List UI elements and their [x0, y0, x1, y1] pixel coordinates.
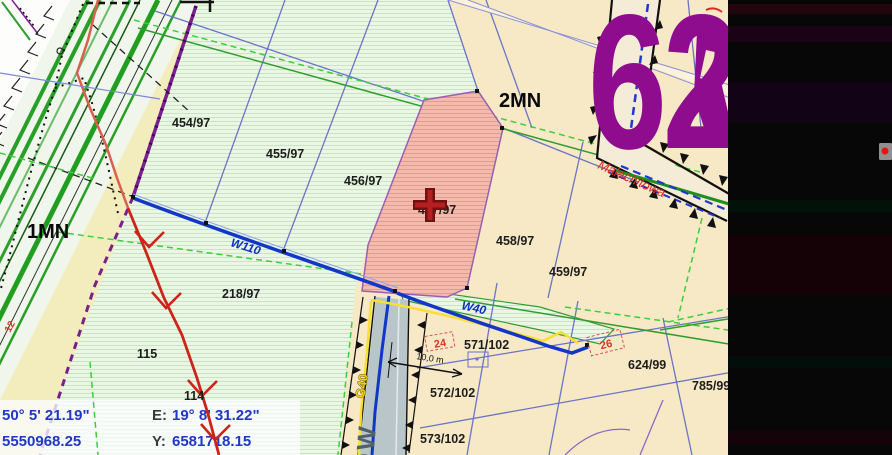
- parcel-label: 573/102: [420, 432, 465, 446]
- road-class-label-dw: DW: [350, 423, 382, 455]
- side-panel-unrendered: [728, 0, 892, 455]
- map-canvas[interactable]: 10,0 m 50° 5' 21.19" E: 19° 8' 31.22" 55…: [0, 0, 892, 455]
- parcel-label: 456/97: [344, 174, 382, 188]
- x-coordinate-value: 5550968.25: [2, 433, 81, 450]
- parcel-label: 571/102: [464, 338, 509, 352]
- latitude-value: 50° 5' 21.19": [2, 407, 90, 424]
- parcel-label: 115: [137, 347, 157, 361]
- red-dot-icon: [882, 148, 889, 155]
- longitude-value: 19° 8' 31.22": [172, 407, 260, 424]
- parcel-label: 572/102: [430, 386, 475, 400]
- y-coordinate-label: Y:: [152, 433, 166, 450]
- gis-map-window: 10,0 m 50° 5' 21.19" E: 19° 8' 31.22" 55…: [0, 0, 892, 455]
- edge-marker-button[interactable]: [879, 143, 892, 160]
- zone-label-1mn: 1MN: [27, 221, 69, 243]
- parcel-label: 459/97: [549, 265, 587, 279]
- parcel-label: 785/99: [692, 379, 730, 393]
- parcel-label: 624/99: [628, 358, 666, 372]
- parcel-label: 458/97: [496, 234, 534, 248]
- parcel-label: 455/97: [266, 147, 304, 161]
- parcel-label: 454/97: [172, 116, 210, 130]
- parcel-label: 218/97: [222, 287, 260, 301]
- longitude-label: E:: [152, 407, 167, 424]
- parcel-label: 114: [184, 389, 204, 403]
- zone-label-2mn: 2MN: [499, 90, 541, 112]
